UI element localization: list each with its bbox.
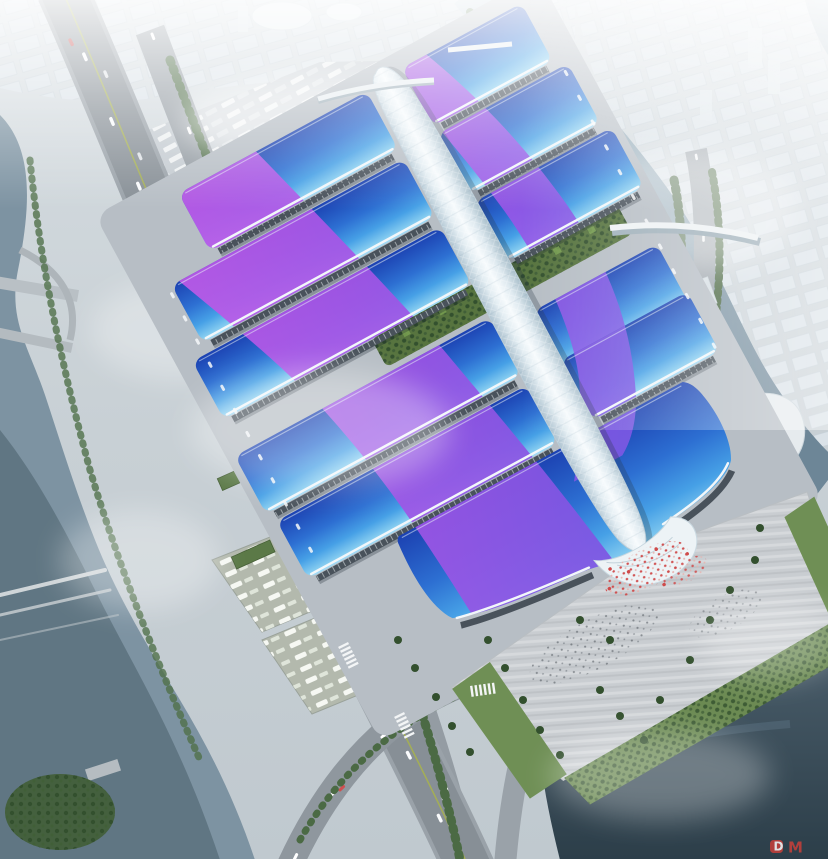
river-island-canopy	[5, 774, 115, 850]
watermark-logo-letter: D	[774, 840, 784, 854]
haze-veil-right	[520, 0, 828, 430]
watermark-text: M	[788, 839, 804, 857]
scene-svg: D M	[0, 0, 828, 859]
aerial-rendering-canvas: D M	[0, 0, 828, 859]
palm-tree	[394, 636, 402, 644]
